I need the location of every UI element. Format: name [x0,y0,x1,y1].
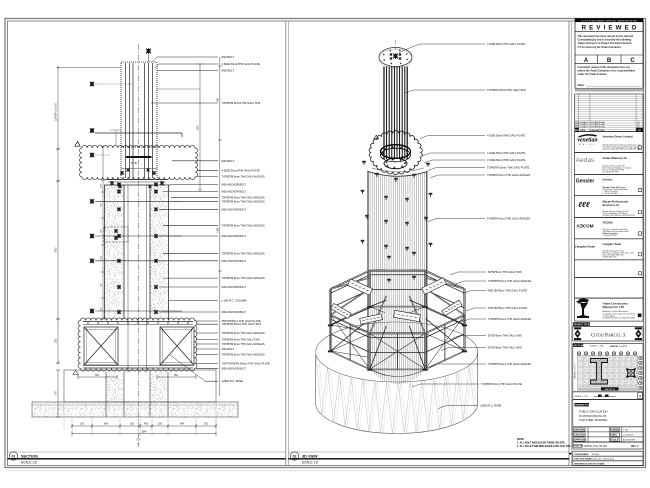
svg-text:REV C: REV C [631,446,639,448]
svg-text:TOP/BTM 6mm THK GALV ANGLES: TOP/BTM 6mm THK GALV ANGLES [222,223,265,227]
svg-text:1830: 1830 [198,125,200,131]
svg-text:DWG NO: DWG NO [574,446,583,448]
svg-text:Gensler: Gensler [576,179,595,185]
svg-text:AECOM: AECOM [603,221,614,225]
svg-text:B: B [607,58,612,64]
svg-text:450: 450 [144,423,149,426]
svg-text:TOP/BTM 6mm THK GALV ANGLES: TOP/BTM 6mm THK GALV ANGLES [222,199,265,203]
svg-text:SCALE 1:8: SCALE 1:8 [21,461,37,465]
svg-text:PARCEL 05: PARCEL 05 [604,388,615,391]
svg-text:750: 750 [56,390,58,395]
svg-text:Consultant review of this: Consultant review of this document does … [578,66,630,69]
svg-text:TOP/BTM 50mm THK GALV SHS: TOP/BTM 50mm THK GALV SHS [222,322,262,326]
svg-text:JOB NUMBER: JOB NUMBER [574,454,588,456]
svg-text:under the Trade Contract.: under the Trade Contract. [578,73,608,76]
svg-text:2964: 2964 [141,431,147,434]
svg-text:Langdon Seah: Langdon Seah [603,242,622,246]
svg-text:50 50: 50 50 [131,162,138,165]
svg-text:Cotai Parcel 3: Cotai Parcel 3 [591,333,626,339]
svg-text:4 SIDE 50mmTHK GALV PLATE: 4 SIDE 50mmTHK GALV PLATE [222,62,260,66]
svg-text:⌀2500 R.C. BASE: ⌀2500 R.C. BASE [480,404,501,408]
svg-text:TOP/BTM 6mm THK GALV ANGLES: TOP/BTM 6mm THK GALV ANGLES [222,195,265,199]
svg-text:Aedas: Aedas [576,157,595,164]
svg-text:200: 200 [130,423,135,426]
svg-text:M16 BOLT: M16 BOLT [222,55,235,59]
svg-text:4 SIDE 50mmTHK GALV PLATE: 4 SIDE 50mmTHK GALV PLATE [487,151,525,155]
svg-text:10.MAY.15: 10.MAY.15 [580,125,589,128]
svg-text:DATE: DATE [611,434,617,437]
svg-text:864: 864 [174,375,179,377]
svg-text:AS SHOWN: AS SHOWN [623,439,635,442]
svg-text:TOP/BTM 6mm THK GALV ANGLES: TOP/BTM 6mm THK GALV ANGLES [222,175,265,179]
svg-text:50*50*6mm THK GALV SHS: 50*50*6mm THK GALV SHS [488,334,522,338]
svg-text:200: 200 [204,423,209,426]
svg-text:PARCEL 1, LOT 2: PARCEL 1, LOT 2 [610,345,628,348]
svg-text:PARCEL 1, LOT 1: PARCEL 1, LOT 1 [573,363,576,378]
svg-text:M16 BOLT: M16 BOLT [222,347,235,351]
svg-text:500: 500 [101,183,103,187]
svg-text:⌀2500 R.C. BASE: ⌀2500 R.C. BASE [222,379,243,383]
svg-text:1164 (FFL to U/S): 1164 (FFL to U/S) [55,103,58,121]
svg-text:M16 ANCHOR BOLT: M16 ANCHOR BOLT [222,310,247,314]
svg-text:4 SIDE 50mmTHK GALV PLATE: 4 SIDE 50mmTHK GALV PLATE [487,42,525,46]
svg-text:SCALE: SCALE [611,439,619,442]
svg-text:500: 500 [101,282,103,286]
svg-text:500: 500 [101,255,103,259]
svg-text:2. ALL FILLET WELDED SHOULD BE: 2. ALL FILLET WELDED SHOULD BE 3mm THK. [517,445,572,448]
svg-text:TOP/TOP/BTM 50mm THK GALV PLAT: TOP/TOP/BTM 50mm THK GALV PLATE [222,361,271,365]
svg-text:315UB_PC2_05-004: 315UB_PC2_05-004 [584,445,608,448]
svg-text:REVIEWED: REVIEWED [582,24,640,31]
svg-text:5.4 for action by the Tra: 5.4 for action by the Trade Contractor. [578,46,622,49]
svg-text:864: 864 [95,375,100,377]
svg-text:KEY PLAN: KEY PLAN [574,344,585,347]
svg-text:TOP/BTM 6mm THK GALV ANGLES: TOP/BTM 6mm THK GALV ANGLES [488,317,531,321]
svg-text:Date :: Date : [578,83,586,87]
svg-text:TOP/BTM 6mm THK GALV ANGLES: TOP/BTM 6mm THK GALV ANGLES [488,279,531,283]
svg-text:DRAWING TITLE: DRAWING TITLE [575,404,591,407]
svg-text:M16 ANCHOR BOLT: M16 ANCHOR BOLT [222,234,247,238]
svg-text:150*150*8mm THK GALV PLATE: 150*150*8mm THK GALV PLATE [488,306,527,310]
svg-text:200: 200 [158,423,163,426]
svg-text:M16 ANCHOR BOLT: M16 ANCHOR BOLT [222,207,247,211]
svg-text:Consultant(s)(s) and is acc: Consultant(s)(s) and is accorded the fol… [578,39,632,42]
svg-text:Telephone: (853) 2882 8888 Fa: Telephone: (853) 2882 8888 Fax: (853) 28… [603,149,641,151]
svg-text:500: 500 [101,228,103,232]
svg-text:SCALE 1 : 750: SCALE 1 : 750 [575,395,589,398]
svg-text:10: 10 [639,395,642,398]
svg-text:01: 01 [12,455,16,459]
svg-text:DESIGNED: DESIGNED [574,430,585,432]
svg-text:500: 500 [101,202,103,206]
svg-text:02: 02 [293,455,297,459]
svg-text:1500: 1500 [56,338,58,344]
svg-text:Tel: (853) 2870 3407 Fax: (85: Tel: (853) 2870 3407 Fax: (853) 2870 343… [603,318,635,320]
svg-text:C: C [630,58,635,64]
svg-text:Fax: (853) 2875 3790: Fax: (853) 2875 3790 [603,172,619,174]
svg-text:SCALE 1:8: SCALE 1:8 [302,461,318,465]
svg-text:200: 200 [80,423,85,426]
svg-text:TOP/BTM 50mm THK GALV PLATE: TOP/BTM 50mm THK GALV PLATE [487,166,529,170]
svg-text:315UB: 315UB [592,454,599,456]
svg-text:4 SIDE 50mmTHK GALV PLATE: 4 SIDE 50mmTHK GALV PLATE [487,134,525,138]
svg-text:NOTE:: NOTE: [517,438,525,441]
svg-text:venetian: venetian [577,138,597,144]
svg-text:-: - [597,440,598,442]
svg-text:Yadea Construction: Yadea Construction [603,302,629,306]
svg-text:TOP/BTM 50mmTHK GALV SHS: TOP/BTM 50mmTHK GALV SHS [222,101,261,105]
svg-text:TOP/BTM 6mm THK GALV PLATE: TOP/BTM 6mm THK GALV PLATE [481,382,522,386]
svg-text:Venetian Orient Limited: Venetian Orient Limited [603,135,633,139]
svg-text:TOP/BTM 6mm THK GALV ANGLES: TOP/BTM 6mm THK GALV ANGLES [222,331,265,335]
svg-text:3500: 3500 [56,247,58,253]
svg-text:14.JUN.15: 14.JUN.15 [623,435,634,437]
svg-text:450*150*8mm THK GALV PLATE: 450*150*8mm THK GALV PLATE [488,289,527,293]
svg-text:FOR STEEL DRAWING: FOR STEEL DRAWING [579,418,607,422]
svg-text:FOR APPROVAL: FOR APPROVAL [591,125,605,128]
svg-text:F +86 21 6103 8800: F +86 21 6103 8800 [603,193,618,195]
svg-text:50*50*6mm THK GALV SHS: 50*50*6mm THK GALV SHS [488,270,522,274]
svg-text:REFERENCE DWG FILE NAME: REFERENCE DWG FILE NAME [574,462,605,465]
svg-text:This document has been revised: This document has been revised by the re… [578,35,634,38]
svg-text:DWG FILE NAME: DWG FILE NAME [574,458,591,461]
svg-text:T +852 3922 9000: T +852 3922 9000 [603,235,617,237]
svg-text:M16 ANCHOR BOLT: M16 ANCHOR BOLT [222,366,247,370]
svg-text:Tel: (853) 2837 2623 Fax: (85: Tel: (853) 2837 2623 Fax: (853) 2837 261… [603,215,635,217]
svg-text:(Macau) CO. LTD.: (Macau) CO. LTD. [603,305,625,309]
svg-text:M16 ANCHOR BOLT: M16 ANCHOR BOLT [222,190,247,194]
svg-text:APPROVED: APPROVED [574,439,586,442]
svg-text:PUBLIC CIRCULATION: PUBLIC CIRCULATION [579,410,608,414]
svg-text:AƎCOM: AƎCOM [576,224,593,229]
svg-text:340: 340 [218,97,220,102]
svg-text:5346: 5346 [218,227,220,233]
svg-text:Gensler: Gensler [603,178,613,182]
svg-text:status referred to in Proj: status referred to in Project Procedure … [578,42,633,45]
svg-text:TOP/BTM 6mm THK GALV ANGLES: TOP/BTM 6mm THK GALV ANGLES [222,276,265,280]
svg-text:CHECKED: CHECKED [574,435,585,437]
svg-text:A: A [584,58,589,64]
svg-text:TOP/BTM 6mm THK GALV ANGLES: TOP/BTM 6mm THK GALV ANGLES [222,353,265,357]
svg-text:TOP/BTM 6mm THK GALV ANGLES: TOP/BTM 6mm THK GALV ANGLES [488,362,531,366]
svg-text:864: 864 [104,423,109,426]
svg-text:TOP/BTM 6mm THK GALV ANGLES: TOP/BTM 6mm THK GALV ANGLES [222,251,265,255]
svg-text:-: - [597,435,598,437]
svg-text:500: 500 [101,306,103,310]
svg-text:SCALE 1 : 7500: SCALE 1 : 7500 [590,345,604,348]
svg-text:F (853) 2833 1532: F (853) 2833 1532 [603,257,617,259]
svg-text:DO NOT SCALE DRAWING, VERIFY A: DO NOT SCALE DRAWING, VERIFY ALL DIMENSI… [581,19,638,22]
svg-text:864: 864 [180,423,185,426]
svg-text:M16 ANCHOR BOLT: M16 ANCHOR BOLT [222,285,247,289]
svg-text:M16 BOLT: M16 BOLT [222,159,235,163]
svg-text:TOP/BTM 6mm THK GALV ANGLES: TOP/BTM 6mm THK GALV ANGLES [222,342,265,346]
svg-text:ℓℓℓ: ℓℓℓ [578,200,591,209]
svg-text:relieve the Trade Contracto: relieve the Trade Contractor of its resp… [578,70,636,73]
svg-text:TOP/BTM 6mm THK GALV ANGLES: TOP/BTM 6mm THK GALV ANGLES [487,173,530,177]
svg-text:FOUNTAIN DETAIL 05: FOUNTAIN DETAIL 05 [579,414,607,418]
svg-text:⌀ 350 R.C. COLUMN: ⌀ 350 R.C. COLUMN [222,299,247,303]
svg-text:L.HO: L.HO [623,430,628,432]
svg-text:50*50*6mm THK GALV SHS: 50*50*6mm THK GALV SHS [488,346,522,350]
svg-text:SECTION: SECTION [21,455,38,459]
svg-text:315UB_PC_05004.dwg: 315UB_PC_05004.dwg [591,459,615,461]
svg-text:Aedas (Macau) Ltd.: Aedas (Macau) Ltd. [603,156,628,160]
svg-text:⊕: ⊕ [137,443,140,446]
svg-text:Langdon•Seah: Langdon•Seah [575,245,595,249]
svg-text:4 SIDE 50mmTHK GALV PLATE: 4 SIDE 50mmTHK GALV PLATE [487,158,525,162]
svg-text:TOP/BTM 6mm THK GALV ANGLES: TOP/BTM 6mm THK GALV ANGLES [487,217,530,221]
svg-text:M16 ANCHOR BOLT: M16 ANCHOR BOLT [222,183,247,187]
svg-text:TOP/BTM 50mmTHK GALV SHS: TOP/BTM 50mmTHK GALV SHS [487,88,526,92]
svg-text:M16 ANCHOR BOLT: M16 ANCHOR BOLT [222,259,247,263]
svg-text:4 SIDE 50mmTHK GALV PLATE: 4 SIDE 50mmTHK GALV PLATE [222,169,260,173]
svg-text:M16 BOLT: M16 BOLT [222,69,235,73]
svg-text:Services Ltd.: Services Ltd. [603,203,620,207]
svg-text:TOP/BTM 6mm THK GALV SHS: TOP/BTM 6mm THK GALV SHS [222,338,260,342]
svg-text:DRAWN: DRAWN [611,429,619,432]
svg-text:PROJECT TITLE: PROJECT TITLE [574,324,590,326]
svg-text:3D VIEW: 3D VIEW [302,455,318,459]
